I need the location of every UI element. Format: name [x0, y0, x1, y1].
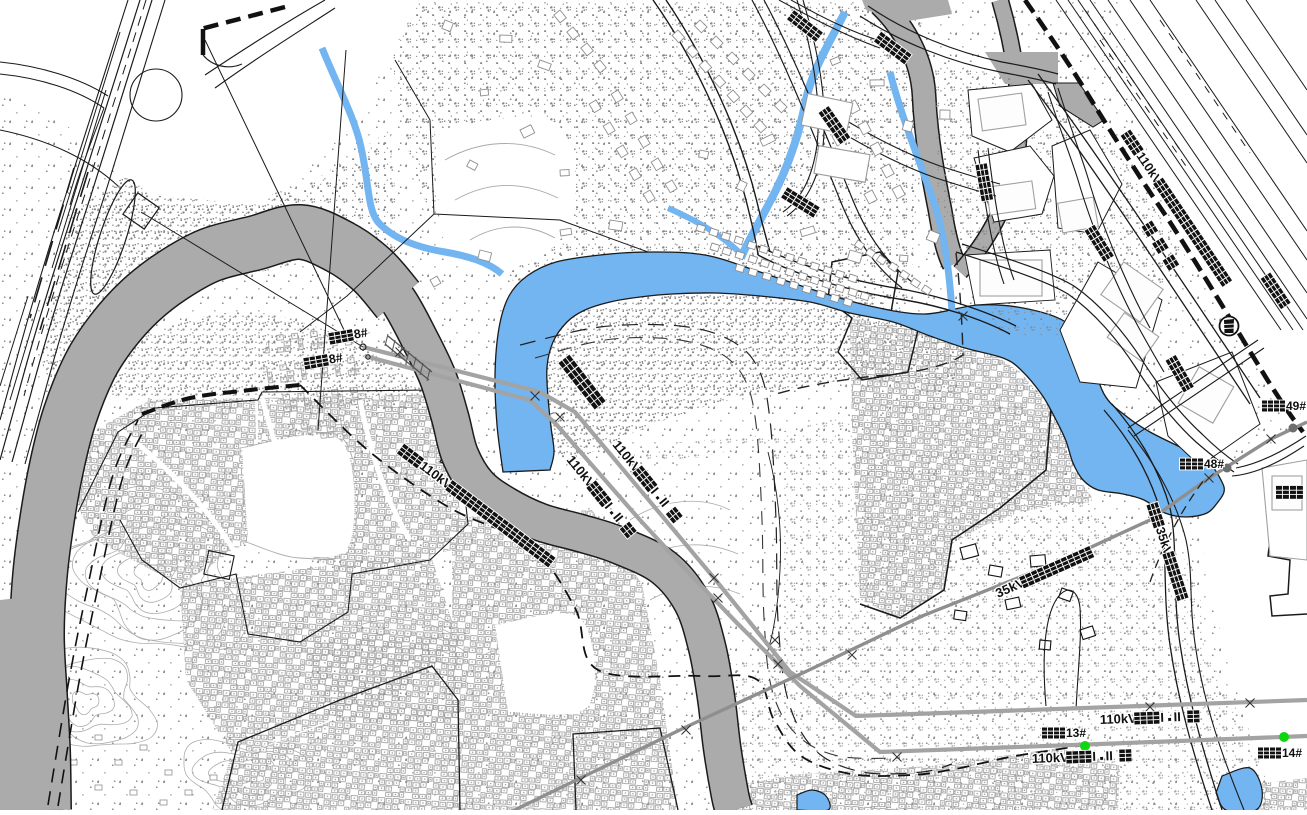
- svg-text:110kV: 110kV: [1032, 750, 1070, 766]
- svg-text:49#: 49#: [1286, 399, 1306, 413]
- svg-text:8#: 8#: [328, 350, 344, 366]
- svg-text:48#: 48#: [1204, 457, 1224, 471]
- svg-text:110kV: 110kV: [1100, 711, 1138, 727]
- svg-text:8#: 8#: [353, 325, 369, 341]
- svg-text:I: I: [1160, 710, 1164, 725]
- svg-text:I: I: [1092, 749, 1096, 764]
- svg-text:13#: 13#: [1066, 726, 1086, 740]
- svg-text:II: II: [1105, 748, 1113, 763]
- svg-text:II: II: [1173, 709, 1181, 724]
- svg-text:14#: 14#: [1282, 746, 1302, 760]
